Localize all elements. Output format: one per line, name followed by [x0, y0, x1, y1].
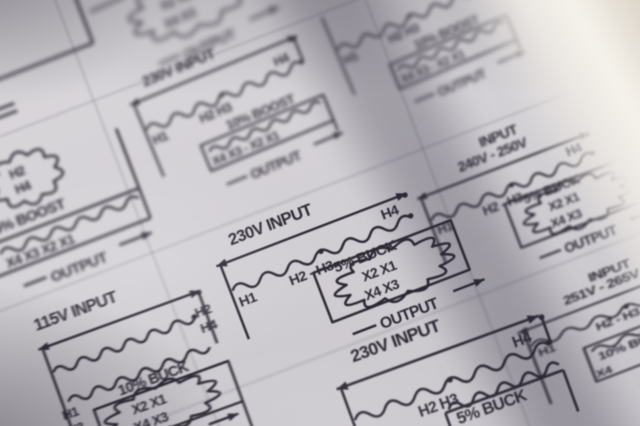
diagram-line — [323, 95, 338, 131]
photo-of-wiring-diagram-page: X2 X1X4 X3OUTPUT230V INPUTH1H2 H3H410% B… — [0, 0, 640, 426]
arrowhead — [141, 229, 153, 240]
arrowhead — [227, 410, 240, 421]
junction-dot — [590, 150, 596, 156]
arrowhead — [333, 129, 344, 139]
x-frag: X4 — [594, 363, 614, 380]
diagram-line — [71, 0, 93, 43]
diagram-line — [631, 208, 640, 219]
coil-mid: H2 H3 — [416, 391, 461, 421]
junction-dot — [407, 212, 414, 219]
junction-dot — [585, 131, 591, 137]
mode-label: 5% BUCK — [454, 385, 529, 426]
diagram-line — [415, 94, 434, 102]
coil-left: H1 — [237, 290, 260, 311]
coil-left: H1 — [536, 341, 557, 359]
coil-left: H1 — [341, 48, 361, 67]
diagram-line — [243, 401, 259, 426]
arrowhead — [473, 275, 486, 286]
diagram-line — [506, 15, 520, 49]
diagram-line — [24, 277, 47, 286]
coil-right: H4 — [271, 49, 292, 69]
arrowhead — [516, 48, 527, 58]
junction-dot — [402, 192, 409, 199]
